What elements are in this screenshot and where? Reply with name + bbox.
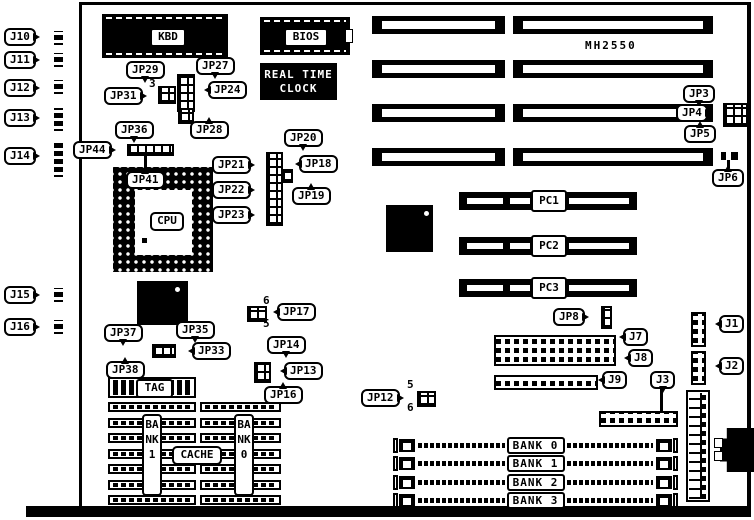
callout-j1: J1 <box>719 315 744 333</box>
callout-j9: J9 <box>602 371 627 389</box>
pin-number-jp12-pin5: 5 <box>407 378 414 391</box>
callout-jp41: JP41 <box>126 171 165 189</box>
callout-jp27: JP27 <box>196 57 235 75</box>
callout-jp8: JP8 <box>553 308 585 326</box>
callout-jp6: JP6 <box>712 169 744 187</box>
simm-slot-bank1: BANK 1 <box>393 456 678 471</box>
jp12-block <box>417 391 436 407</box>
pci-slot-1-label: PC1 <box>531 190 567 212</box>
keyboard-din-connector <box>720 428 754 472</box>
pin-number-jp31-pin3: 3 <box>149 77 156 90</box>
callout-jp28: JP28 <box>190 121 229 139</box>
isa-slot-4-short <box>372 148 505 166</box>
callout-jp33: JP33 <box>192 342 231 360</box>
rtc-label-line2: CLOCK <box>260 82 337 96</box>
simm-bank3-label: BANK 3 <box>507 492 565 509</box>
jp13-block <box>254 362 271 383</box>
callout-jp29: JP29 <box>126 61 165 79</box>
isa-slot-1-long <box>513 16 713 34</box>
pin-number-jp12-pin6: 6 <box>407 401 414 414</box>
isa-slot-4-long <box>513 148 713 166</box>
pin-number-jp17-pin5: 5 <box>263 317 270 330</box>
callout-jp21: JP21 <box>212 156 251 174</box>
pci-slot-2: PC2 <box>459 237 637 255</box>
callout-jp12: JP12 <box>361 389 400 407</box>
pin-number-jp17-pin6: 6 <box>263 294 270 307</box>
bios-chip-label: BIOS <box>284 28 328 47</box>
keyboard-din-tab-2 <box>714 451 723 461</box>
callout-jp37: JP37 <box>104 324 143 342</box>
pci-slot-3-label: PC3 <box>531 277 567 299</box>
simm-bank2-label: BANK 2 <box>507 474 565 491</box>
jp3-jp4-jp5-block <box>723 103 748 127</box>
rtc-label-line1: REAL TIME <box>260 68 337 82</box>
pci-slot-3: PC3 <box>459 279 637 297</box>
connector-j10 <box>52 30 65 46</box>
callout-j10: J10 <box>4 28 36 46</box>
pci-slot-1: PC1 <box>459 192 637 210</box>
connector-j14 <box>52 142 65 178</box>
callout-jp35: JP35 <box>176 321 215 339</box>
callout-jp13: JP13 <box>284 362 323 380</box>
simm-bank0-label: BANK 0 <box>507 437 565 454</box>
kbd-chip-label: KBD <box>150 28 186 47</box>
j1-connector <box>691 312 706 347</box>
callout-jp5: JP5 <box>684 125 716 143</box>
board-border-top <box>79 2 751 5</box>
callout-j3: J3 <box>650 371 675 389</box>
callout-j15: J15 <box>4 286 36 304</box>
cpu-pin1-dot <box>142 238 147 243</box>
chip-above-jp37 <box>137 281 188 325</box>
cache-bank0-label: BANK0 <box>234 414 254 496</box>
simm-slot-bank2: BANK 2 <box>393 475 678 490</box>
board-border-left <box>79 2 82 514</box>
callout-jp44: JP44 <box>73 141 112 159</box>
callout-jp22: JP22 <box>212 181 251 199</box>
jp31-block <box>158 86 176 104</box>
j2-connector <box>691 351 706 385</box>
callout-j13: J13 <box>4 109 36 127</box>
connector-j13 <box>52 107 65 132</box>
callout-jp23: JP23 <box>212 206 251 224</box>
power-connector <box>686 390 710 502</box>
connector-j11 <box>52 52 65 68</box>
callout-j14: J14 <box>4 147 36 165</box>
jp20-jp23-column <box>266 152 283 226</box>
chipset-chip <box>386 205 433 252</box>
tag-label: TAG <box>136 379 173 398</box>
isa-slot-1-short <box>372 16 505 34</box>
j9-header <box>494 375 598 390</box>
j3-connector <box>599 411 678 427</box>
jp8-block <box>601 306 612 329</box>
callout-j16: J16 <box>4 318 36 336</box>
cpu-label: CPU <box>150 212 184 231</box>
jp27-jp24-block <box>177 74 195 112</box>
callout-j7: J7 <box>623 328 648 346</box>
callout-jp14: JP14 <box>267 336 306 354</box>
callout-jp3: JP3 <box>683 85 715 103</box>
rtc-chip: REAL TIME CLOCK <box>260 63 337 100</box>
bios-chip-notch <box>345 29 353 43</box>
callout-j2: J2 <box>719 357 744 375</box>
jp33-block <box>152 344 176 358</box>
board-name: MH2550 <box>585 39 637 52</box>
cache-label: CACHE <box>172 446 222 465</box>
callout-jp19: JP19 <box>292 187 331 205</box>
isa-slot-3-short <box>372 104 505 122</box>
callout-jp38: JP38 <box>106 361 145 379</box>
pci-slot-2-label: PC2 <box>531 235 567 257</box>
callout-j12: J12 <box>4 79 36 97</box>
simm-slot-bank0: BANK 0 <box>393 438 678 453</box>
connector-j16 <box>52 319 65 335</box>
isa-slot-2-long <box>513 60 713 78</box>
isa-slot-2-short <box>372 60 505 78</box>
callout-jp36: JP36 <box>115 121 154 139</box>
callout-jp18: JP18 <box>299 155 338 173</box>
connector-j15 <box>52 287 65 303</box>
callout-jp16: JP16 <box>264 386 303 404</box>
simm-bank1-label: BANK 1 <box>507 455 565 472</box>
callout-jp17: JP17 <box>277 303 316 321</box>
keyboard-din-tab-1 <box>714 438 723 448</box>
callout-j8: J8 <box>628 349 653 367</box>
simm-slots: BANK 0 BANK 1 BANK 2 BANK 3 <box>393 438 678 508</box>
cache-bank1-label: BANK1 <box>142 414 162 496</box>
jp19-cell <box>281 169 293 183</box>
connector-j12 <box>52 79 65 95</box>
kbd-chip: KBD <box>102 14 228 58</box>
callout-jp31: JP31 <box>104 87 143 105</box>
callout-jp20: JP20 <box>284 129 323 147</box>
motherboard-diagram: KBD BIOS REAL TIME CLOCK MH2550 CPU <box>0 0 754 520</box>
j7-j8-header <box>494 335 616 366</box>
callout-jp24: JP24 <box>208 81 247 99</box>
callout-j11: J11 <box>4 51 36 69</box>
simm-slot-bank3: BANK 3 <box>393 493 678 508</box>
bios-chip: BIOS <box>260 17 350 55</box>
